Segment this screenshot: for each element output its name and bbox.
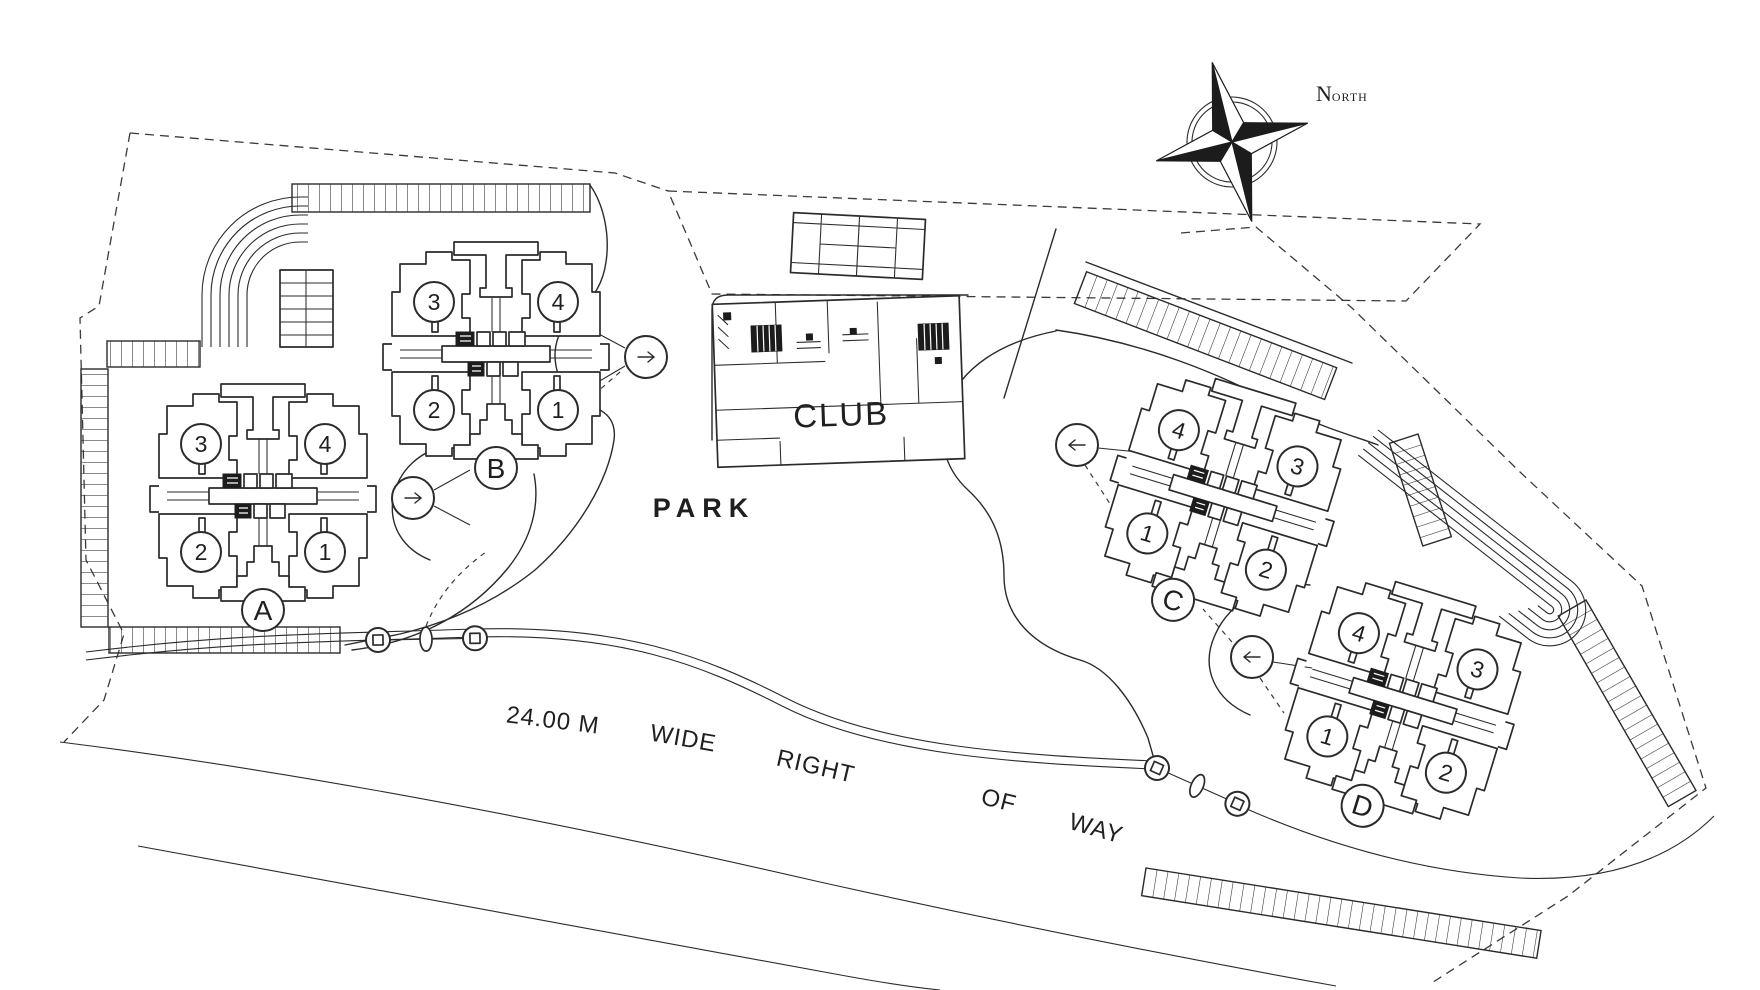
- tower-footprint: [150, 384, 376, 601]
- tower-footprint: [1264, 561, 1544, 835]
- club-label: CLUB: [793, 394, 890, 434]
- road-label-wide: WIDE: [648, 720, 718, 758]
- building-label-a: A: [242, 589, 284, 631]
- parking-strip: [109, 627, 340, 653]
- club-building: CLUB: [712, 296, 965, 468]
- building-label-b: B: [475, 447, 517, 489]
- svg-text:1: 1: [319, 539, 332, 565]
- parking-strip: [81, 369, 108, 627]
- north-label: NORTH: [1316, 81, 1368, 106]
- svg-text:3: 3: [428, 289, 441, 315]
- club-stair-core: [918, 323, 949, 350]
- svg-text:3: 3: [195, 431, 208, 457]
- svg-text:4: 4: [319, 431, 332, 457]
- svg-text:A: A: [254, 595, 273, 626]
- site-plan-page: CLUB 3 4 2 1 A 3 4 2 1 B 4 3 1 2 C 4 3 1…: [0, 0, 1760, 990]
- road-label-width: 24.00 M: [505, 701, 601, 739]
- building-b: 3 4 2 1 B: [383, 242, 609, 489]
- entry-arrow-icon: [1056, 424, 1098, 466]
- svg-text:4: 4: [552, 289, 565, 315]
- tower-footprint: [383, 242, 609, 459]
- road-label: 24.00 M WIDE RIGHT OF WAY: [505, 701, 1126, 849]
- site-plan-drawing: CLUB 3 4 2 1 A 3 4 2 1 B 4 3 1 2 C 4 3 1…: [0, 0, 1760, 990]
- unit-marker: 1: [305, 532, 345, 572]
- unit-marker: 4: [538, 282, 578, 322]
- club-stair-core: [751, 325, 782, 352]
- parking-strip: [107, 341, 200, 367]
- unit-marker: 3: [414, 282, 454, 322]
- svg-text:B: B: [487, 453, 506, 484]
- unit-marker: 3: [181, 424, 221, 464]
- parking-strip: [292, 184, 590, 212]
- unit-marker: 2: [414, 390, 454, 430]
- building-d: 4 3 1 2 D: [1256, 561, 1544, 861]
- road-label-way: WAY: [1066, 808, 1126, 849]
- parking-strip: [1074, 272, 1336, 400]
- gate-post-icon: [366, 628, 390, 652]
- road-label-of: OF: [978, 783, 1019, 818]
- gate-post-icon: [1141, 752, 1173, 784]
- tennis-court-icon: [791, 213, 926, 280]
- svg-text:2: 2: [195, 539, 208, 565]
- gate-right: [1141, 752, 1253, 819]
- svg-text:2: 2: [428, 397, 441, 423]
- svg-text:1: 1: [552, 397, 565, 423]
- unit-marker: 2: [181, 532, 221, 572]
- gate-post-icon: [1222, 788, 1254, 820]
- unit-marker: 4: [305, 424, 345, 464]
- building-a: 3 4 2 1 A: [150, 384, 376, 631]
- entry-arrow-icon: [392, 470, 470, 525]
- road-label-right: RIGHT: [774, 745, 858, 789]
- grid-structure: [280, 270, 333, 347]
- unit-marker: 1: [538, 390, 578, 430]
- gate-left: [366, 626, 487, 652]
- parking-strip: [1142, 868, 1541, 958]
- entry-arrow-icon: [1231, 636, 1273, 678]
- gate-post-icon: [463, 626, 487, 650]
- park-label: PARK: [653, 493, 756, 523]
